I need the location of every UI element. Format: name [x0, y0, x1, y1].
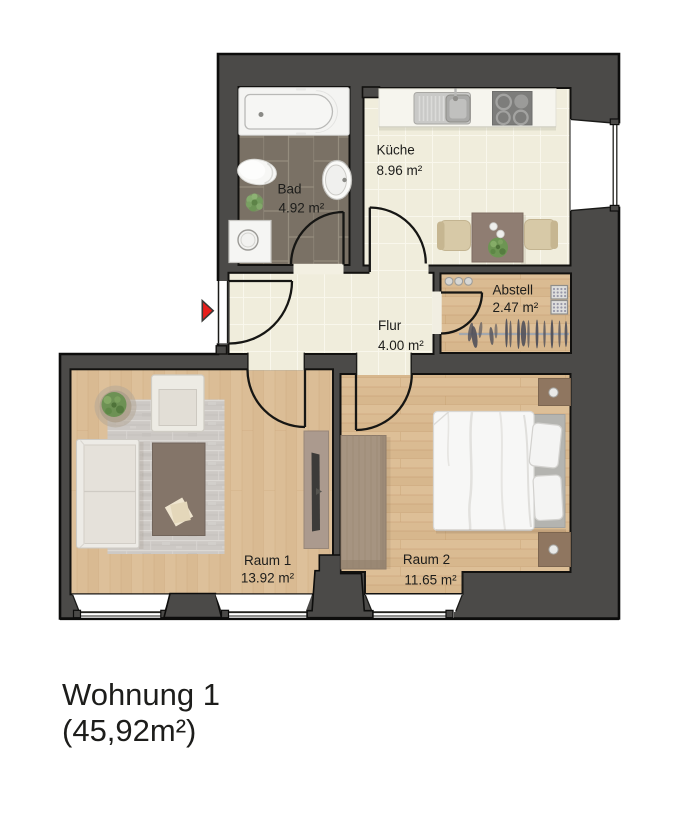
svg-text:Raum 1: Raum 1: [244, 553, 291, 568]
svg-text:4.92 m²: 4.92 m²: [279, 200, 325, 215]
svg-text:8.96 m²: 8.96 m²: [377, 163, 423, 178]
svg-text:11.65 m²: 11.65 m²: [404, 572, 457, 587]
svg-text:13.92 m²: 13.92 m²: [241, 570, 295, 585]
svg-text:Küche: Küche: [377, 143, 415, 158]
svg-text:Abstell: Abstell: [493, 283, 534, 298]
svg-text:Wohnung 1: Wohnung 1: [62, 677, 220, 712]
svg-text:Bad: Bad: [278, 181, 302, 196]
svg-text:Flur: Flur: [378, 318, 402, 333]
svg-text:4.00 m²: 4.00 m²: [378, 338, 424, 353]
svg-text:2.47 m²: 2.47 m²: [493, 300, 539, 315]
svg-text:(45,92m²): (45,92m²): [62, 713, 196, 748]
svg-text:Raum 2: Raum 2: [403, 552, 450, 567]
